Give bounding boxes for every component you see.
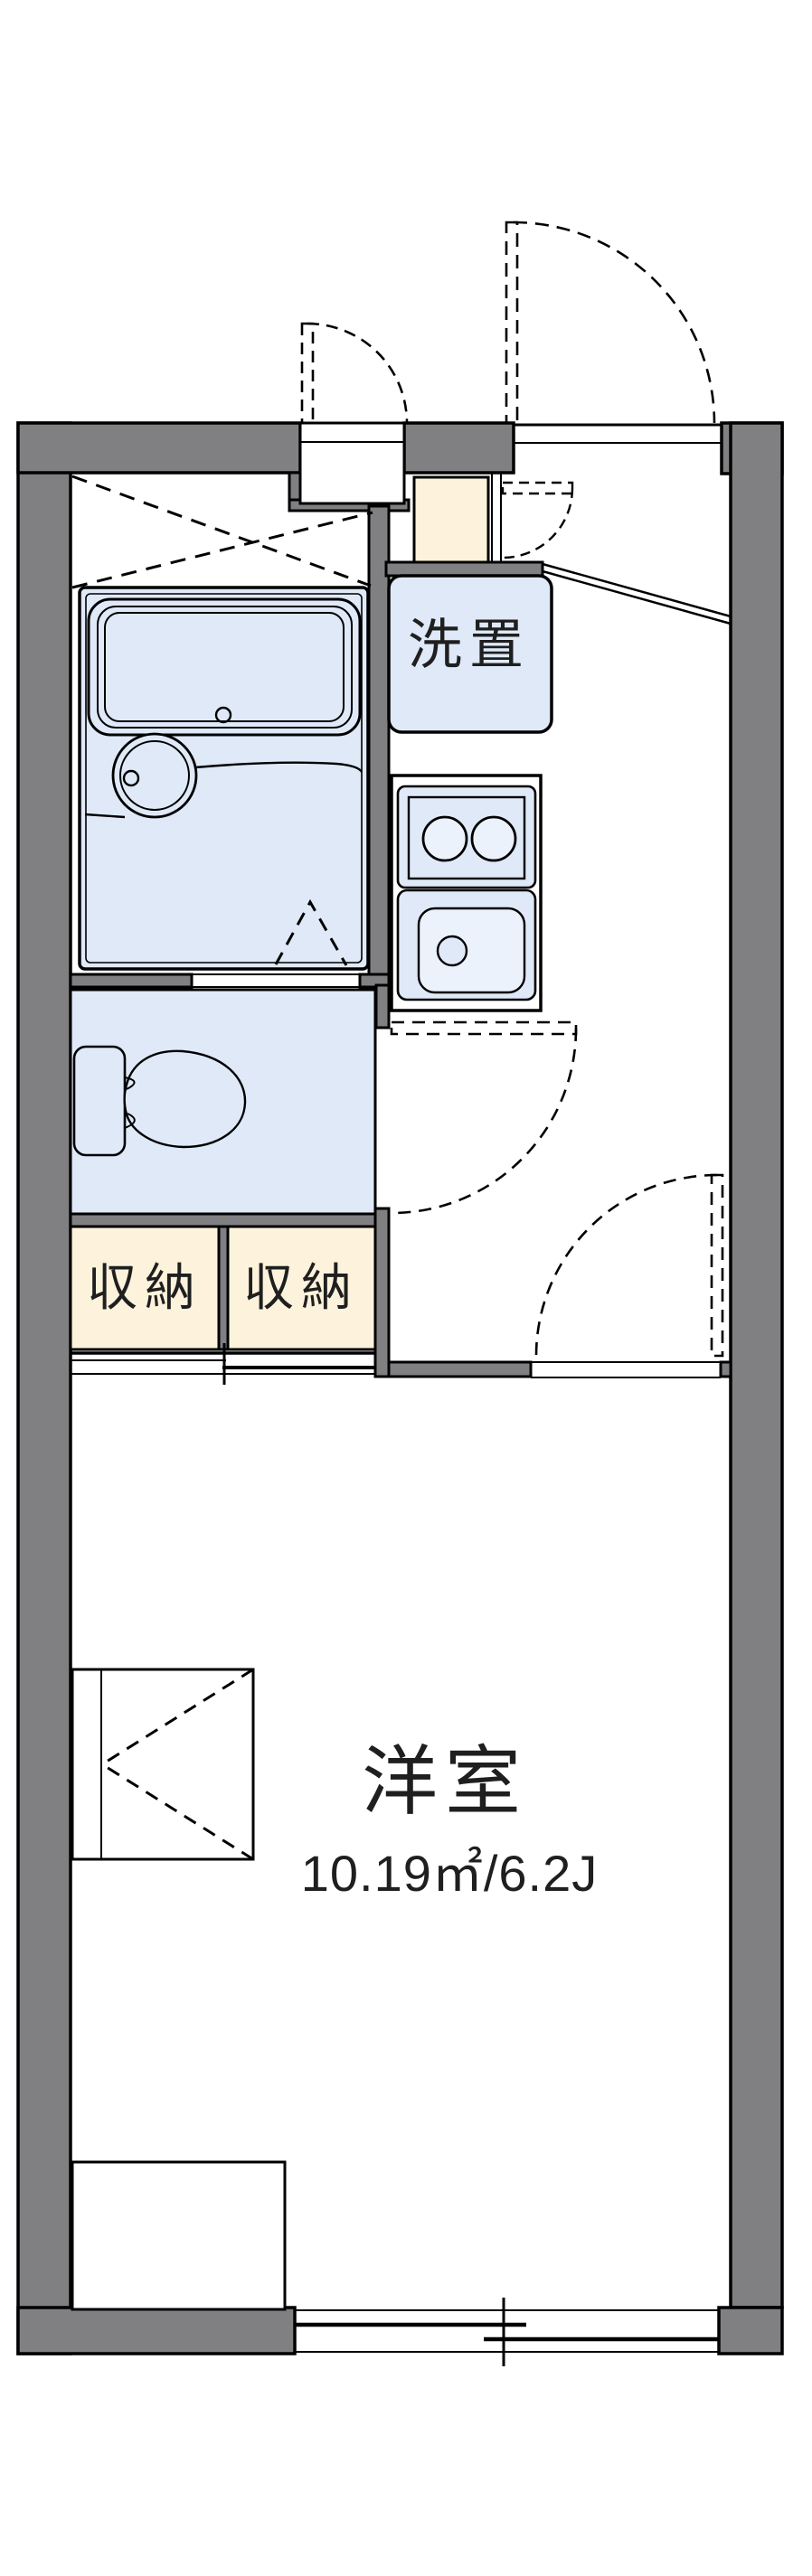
entrance-door-arc [514,222,714,423]
room-label: 洋室 [362,1739,528,1824]
bath-cross-line-2 [72,512,373,588]
side-window-box [72,1669,253,1859]
wall-bottom-right [719,2308,782,2354]
washer-space: 洗置 [389,576,552,732]
wall-room-top [389,1362,531,1377]
porch-recess [300,423,404,503]
porch-door-leaf [302,324,313,423]
washroom-door [392,1022,576,1213]
porch-door [302,324,407,423]
wall-toilet-storage [71,1214,375,1227]
wall-above-washer [386,562,543,576]
washer-label: 洗置 [408,615,531,675]
room-size-label: 10.19㎡/6.2J [301,1845,599,1902]
wall-bottom-left [18,2308,295,2354]
wall-right [731,423,782,2308]
genkan-mat [414,477,488,562]
western-room: 洋室 10.19㎡/6.2J [72,1669,719,2366]
toilet-room [71,990,375,1214]
washroom-door-arc [392,1029,576,1213]
stove-burner-left [423,817,467,860]
room-door-arc [536,1175,717,1356]
storage-right-label: 収納 [243,1259,359,1316]
wall-washroom-corridor [369,506,389,987]
sink-drain [438,936,467,965]
storage-left-label: 収納 [87,1259,203,1316]
floorplan-page: 洗置 収納 収納 洋室 1 [0,0,812,2576]
genkan-step-diagonal-2 [543,571,731,624]
entrance-door-leaf [506,222,517,423]
genkan-door [503,483,572,558]
wall-top-left [18,423,300,473]
wall-room-top-stub [721,1362,731,1377]
wall-left [18,423,71,2354]
room-door [531,1175,722,1377]
wall-top-mid [404,423,514,473]
washroom-door-leaf [392,1022,576,1034]
kitchen-unit [392,776,541,1011]
wall-toilet-right-top [376,985,389,1028]
wall-bath-toilet [71,974,192,987]
wall-toilet-right-bottom [375,1208,389,1377]
floorplan-svg: 洗置 収納 収納 洋室 1 [0,0,812,2576]
genkan-door-arc [503,488,572,558]
toilet-tank [74,1047,125,1155]
porch-door-arc [307,324,407,423]
counter-box [72,2162,285,2309]
room-door-leaf [712,1175,722,1356]
entrance-door [506,222,714,423]
sink-basin [419,908,524,992]
genkan-step-diagonal-1 [543,564,731,616]
stove-burner-right [472,817,515,860]
main-window [295,2298,719,2366]
bathroom [72,476,375,987]
genkan-door-leaf [503,483,572,494]
